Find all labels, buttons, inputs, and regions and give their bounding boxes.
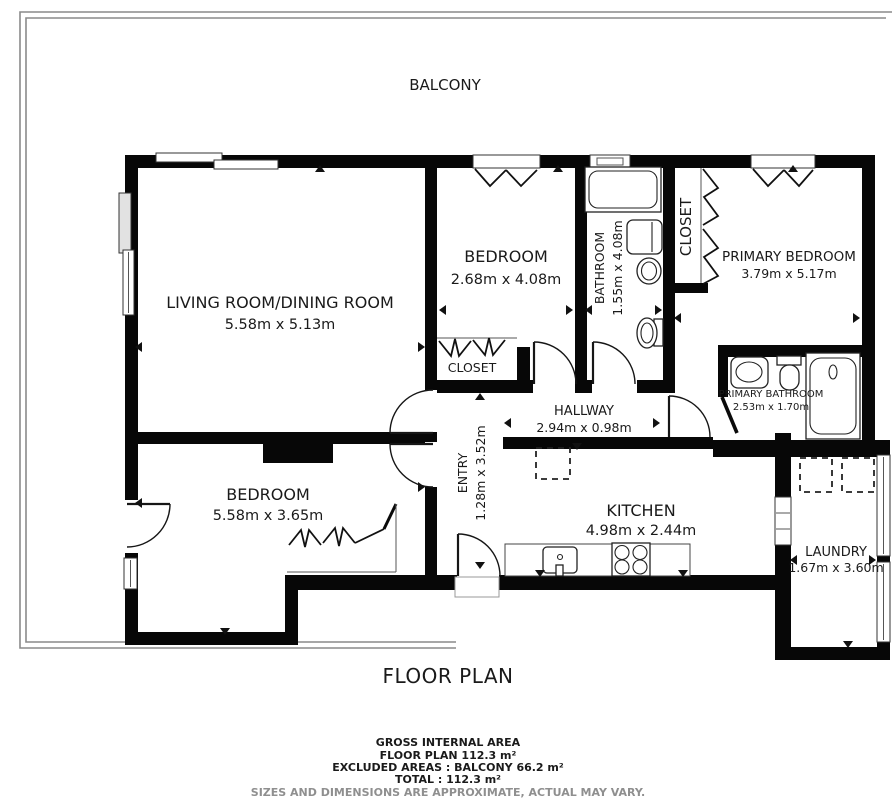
bathtub-symbol — [585, 167, 661, 212]
footer-area-heading: GROSS INTERNAL AREA — [376, 736, 521, 749]
room-label-bathroom: BATHROOM — [592, 232, 607, 304]
room-dims-bedroom-top: 2.68m x 4.08m — [451, 272, 562, 288]
laundry-door — [775, 497, 791, 545]
room-label-living: LIVING ROOM/DINING ROOM — [166, 293, 394, 312]
room-dims-primary-bedroom: 3.79m x 5.17m — [741, 266, 836, 281]
room-label-entry: ENTRY — [455, 452, 470, 493]
room-dims-kitchen: 4.98m x 2.44m — [586, 523, 697, 539]
dryer-placeholder — [842, 458, 874, 492]
room-label-laundry: LAUNDRY — [805, 545, 867, 560]
window-bedroom-top — [473, 155, 540, 186]
plan-title: FLOOR PLAN — [383, 664, 514, 688]
window-bedroom-bottom — [124, 558, 137, 589]
toilet-symbol-primary-bathroom — [777, 356, 801, 390]
bidet-symbol — [637, 258, 661, 284]
room-dims-living: 5.58m x 5.13m — [225, 317, 336, 333]
door-arc-bedroom-top — [534, 342, 576, 384]
window-primary-bedroom — [751, 155, 815, 186]
door-arc-front-entry — [458, 534, 500, 576]
balcony-label: BALCONY — [409, 76, 481, 94]
closet-bifold-primary — [701, 168, 718, 284]
room-dims-bedroom-bottom: 5.58m x 3.65m — [213, 508, 324, 524]
balcony-outline — [20, 12, 892, 648]
room-label-primary-bathroom: PRIMARY BATHROOM — [719, 389, 824, 400]
floor-plan-drawing: BALCONY LIVING ROOM/DINING ROOM 5.58m x … — [0, 0, 896, 800]
washer-placeholder — [800, 458, 832, 492]
room-dims-hallway: 2.94m x 0.98m — [536, 420, 631, 435]
room-dims-primary-bathroom: 2.53m x 1.70m — [733, 402, 809, 413]
door-gap-bedroom-bottom — [125, 500, 138, 553]
kitchen-sink-symbol — [543, 547, 577, 576]
appliance-placeholder-kitchen — [536, 448, 570, 479]
window-bathroom — [590, 155, 630, 168]
room-label-kitchen: KITCHEN — [606, 501, 675, 520]
door-arc-bathroom — [593, 342, 635, 384]
room-label-closet-hall: CLOSET — [448, 360, 497, 375]
kitchen-counter — [505, 544, 690, 576]
door-arc-primary-bedroom — [669, 396, 710, 437]
footer-total: TOTAL : 112.3 m² — [395, 773, 501, 786]
door-gap-bedroom3 — [425, 442, 437, 487]
room-label-closet-primary: CLOSET — [677, 197, 695, 256]
toilet-symbol-bathroom — [637, 318, 663, 348]
window-laundry-upper — [877, 455, 890, 556]
sink-symbol-bathroom — [627, 220, 662, 254]
room-label-bedroom-top: BEDROOM — [464, 247, 548, 266]
stove-symbol — [612, 543, 650, 576]
room-dims-bathroom: 1.55m x 4.08m — [610, 220, 625, 315]
room-label-bedroom-bottom: BEDROOM — [226, 485, 310, 504]
front-door-threshold — [455, 577, 499, 597]
sink-symbol-primary-bathroom — [731, 357, 768, 388]
room-dims-laundry: 1.67m x 3.60m — [788, 560, 883, 575]
room-label-primary-bedroom: PRIMARY BEDROOM — [722, 249, 856, 265]
footer-disclaimer: SIZES AND DIMENSIONS ARE APPROXIMATE, AC… — [251, 786, 645, 799]
room-label-hallway: HALLWAY — [554, 404, 614, 419]
room-dims-entry: 1.28m x 3.52m — [473, 425, 488, 520]
closet-rod-bedroom-top — [437, 338, 517, 356]
door-gap-living — [425, 390, 437, 432]
floor-plan-page: BALCONY LIVING ROOM/DINING ROOM 5.58m x … — [0, 0, 896, 800]
